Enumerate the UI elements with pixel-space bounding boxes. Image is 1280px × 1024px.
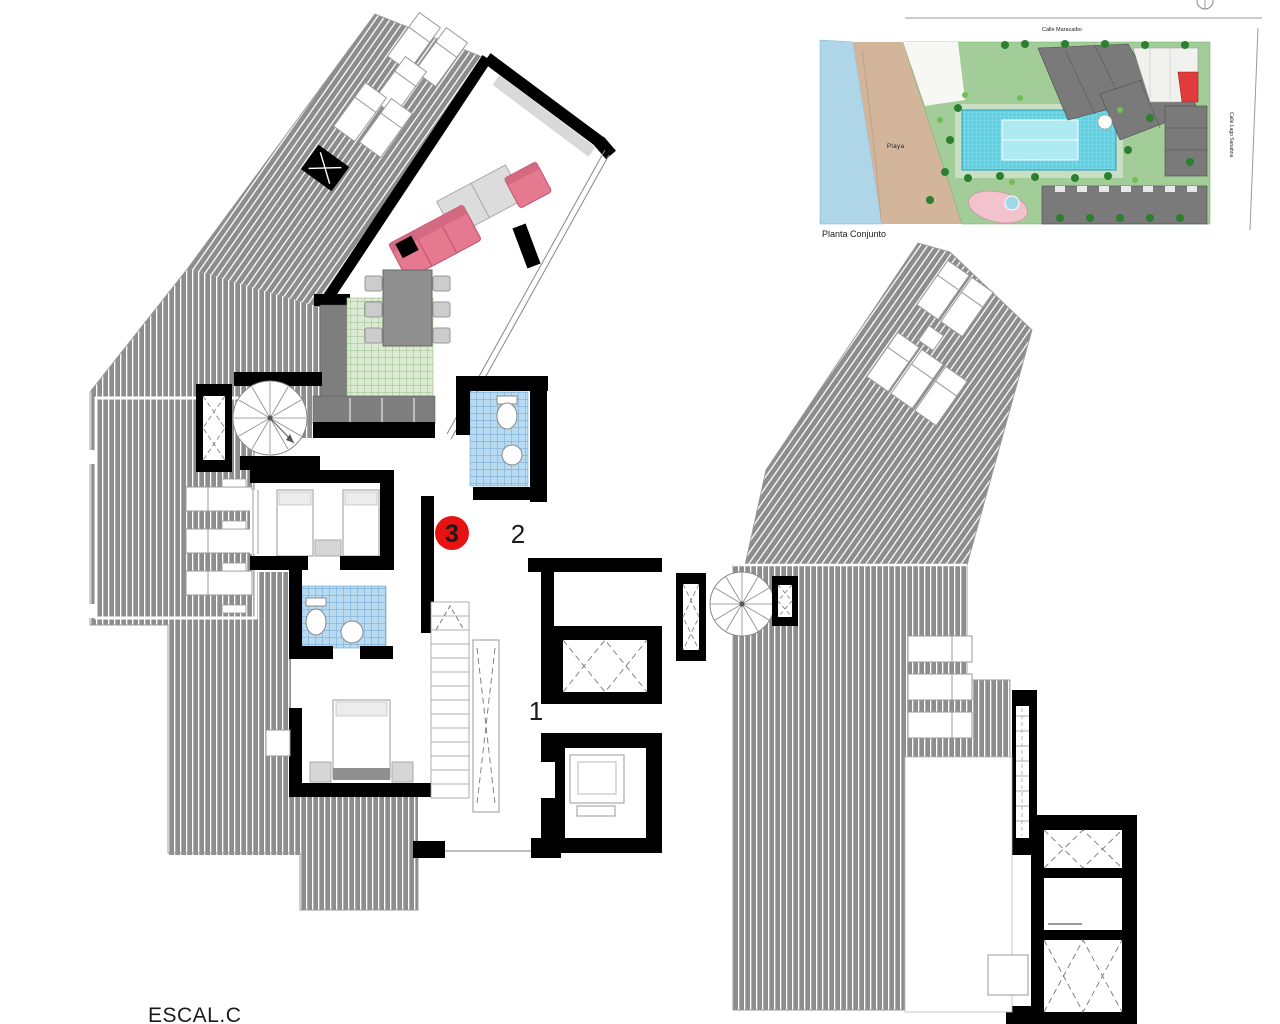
- nightstand: [315, 540, 341, 556]
- toilet: [306, 598, 326, 606]
- room-number-2: 2: [511, 519, 525, 549]
- kitchen-counter-bottom: [313, 396, 435, 424]
- floorplan-sheet: 3 2 1: [0, 0, 1280, 1024]
- spiral-staircase-right: [710, 572, 774, 636]
- sink: [341, 621, 363, 643]
- street-line-right: [1250, 28, 1258, 230]
- small-table: [988, 955, 1028, 995]
- spa-circle: [1005, 196, 1019, 210]
- elevator-shaft-a: [676, 573, 706, 661]
- right-unit-plan: [676, 243, 1137, 1024]
- elevator-shaft-b: [772, 576, 798, 626]
- bed-bench: [333, 768, 390, 780]
- pergola: [1098, 115, 1112, 129]
- kitchen-counter-left: [320, 305, 347, 397]
- room-number-1: 1: [529, 696, 543, 726]
- sun-loungers-strip: [186, 479, 252, 613]
- wall-jog: [531, 838, 561, 858]
- badge-number: 3: [445, 520, 459, 548]
- left-unit-plan: 3 2 1: [88, 13, 662, 910]
- terrace-table: [266, 730, 290, 756]
- elevator-left: [196, 384, 232, 472]
- frame-notch: [88, 450, 96, 464]
- storage-room: [541, 733, 662, 853]
- bathroom-1: [456, 376, 548, 502]
- site-plan-inset: Playa Calle Maracaibo Calle Lago Sanabri…: [820, 0, 1262, 239]
- toilet-bowl: [306, 609, 326, 635]
- spiral-staircase-left: [233, 381, 307, 455]
- unit-number-badge: 3: [435, 516, 469, 550]
- street-right-label: Calle Lago Sanabria: [1228, 112, 1234, 158]
- site-plan-caption: Planta Conjunto: [822, 229, 886, 239]
- beach-label: Playa: [887, 144, 905, 150]
- floorplan-drawing: 3 2 1: [0, 0, 1280, 1024]
- terrace-bottom: [300, 793, 418, 910]
- sink: [502, 445, 522, 465]
- dining-table: [383, 270, 432, 346]
- wall-jog: [413, 841, 445, 858]
- bathroom-tiles: [470, 392, 528, 486]
- nightstand: [310, 762, 331, 782]
- street-top-label: Calle Maracaibo: [1042, 27, 1082, 33]
- frame-notch: [88, 604, 96, 618]
- door-gap: [541, 762, 555, 798]
- escalera-label: ESCAL.C: [148, 1004, 241, 1024]
- nightstand: [392, 762, 413, 782]
- sun-loungers-lower-right: [908, 636, 972, 738]
- stair-rail: [473, 640, 499, 812]
- dining-set: [365, 270, 450, 346]
- ladder: [1016, 706, 1029, 838]
- toilet-bowl: [497, 403, 517, 429]
